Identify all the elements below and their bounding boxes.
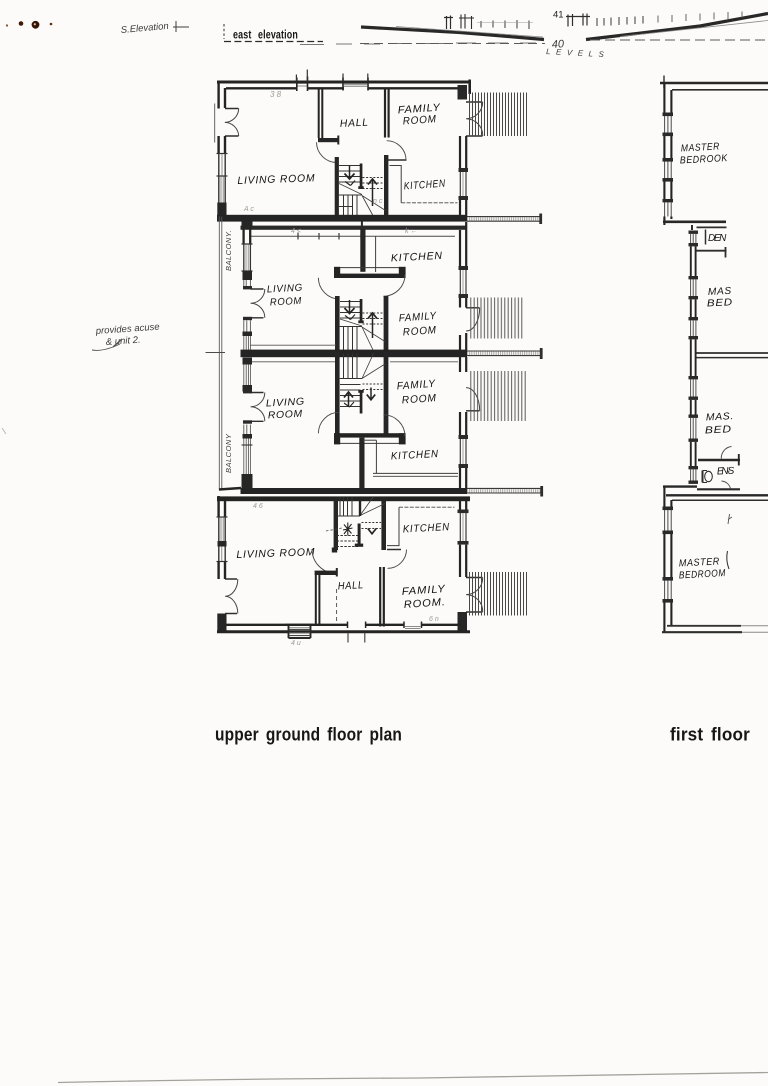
- svg-text:BED: BED: [707, 297, 734, 309]
- svg-text:ROOM: ROOM: [270, 296, 303, 309]
- svg-text:4 u: 4 u: [291, 640, 301, 647]
- svg-text:ROOM: ROOM: [401, 392, 437, 406]
- svg-text:first floor: first floor: [670, 724, 750, 745]
- svg-text:4 <: 4 <: [291, 228, 301, 235]
- svg-text:HALL: HALL: [338, 579, 365, 592]
- svg-text:ROOM: ROOM: [402, 324, 437, 338]
- svg-text:k ←: k ←: [405, 228, 417, 235]
- svg-text:BED: BED: [705, 424, 733, 436]
- svg-text:KITCHEN: KITCHEN: [391, 448, 440, 462]
- svg-text:DEN: DEN: [708, 233, 727, 244]
- svg-text:upper ground floor plan: upper ground floor plan: [215, 724, 402, 745]
- svg-text:6 n: 6 n: [429, 616, 439, 623]
- svg-text:ROOM: ROOM: [268, 409, 304, 422]
- svg-text:EN-S: EN-S: [717, 466, 736, 478]
- svg-text:A c: A c: [243, 206, 254, 213]
- svg-text:BALCONY: BALCONY: [224, 433, 233, 473]
- svg-text:MASTER: MASTER: [681, 141, 721, 154]
- svg-text:HALL: HALL: [340, 116, 370, 130]
- svg-text:MASTER: MASTER: [679, 556, 721, 569]
- svg-text:MAS: MAS: [708, 286, 733, 298]
- svg-text:KITCHEN: KITCHEN: [403, 521, 451, 535]
- svg-text:4 6: 4 6: [253, 503, 263, 510]
- svg-text:41: 41: [553, 10, 564, 21]
- svg-text:ROOM: ROOM: [402, 113, 437, 127]
- svg-text:MAS.: MAS.: [706, 411, 735, 423]
- svg-text:n c: n c: [373, 198, 383, 205]
- svg-text:LIVING: LIVING: [267, 283, 304, 296]
- svg-text:BALCONY.: BALCONY.: [224, 230, 233, 271]
- svg-text:3 8: 3 8: [270, 90, 282, 99]
- svg-text:east elevation: east elevation: [233, 30, 298, 42]
- svg-text:LIVING: LIVING: [266, 396, 306, 409]
